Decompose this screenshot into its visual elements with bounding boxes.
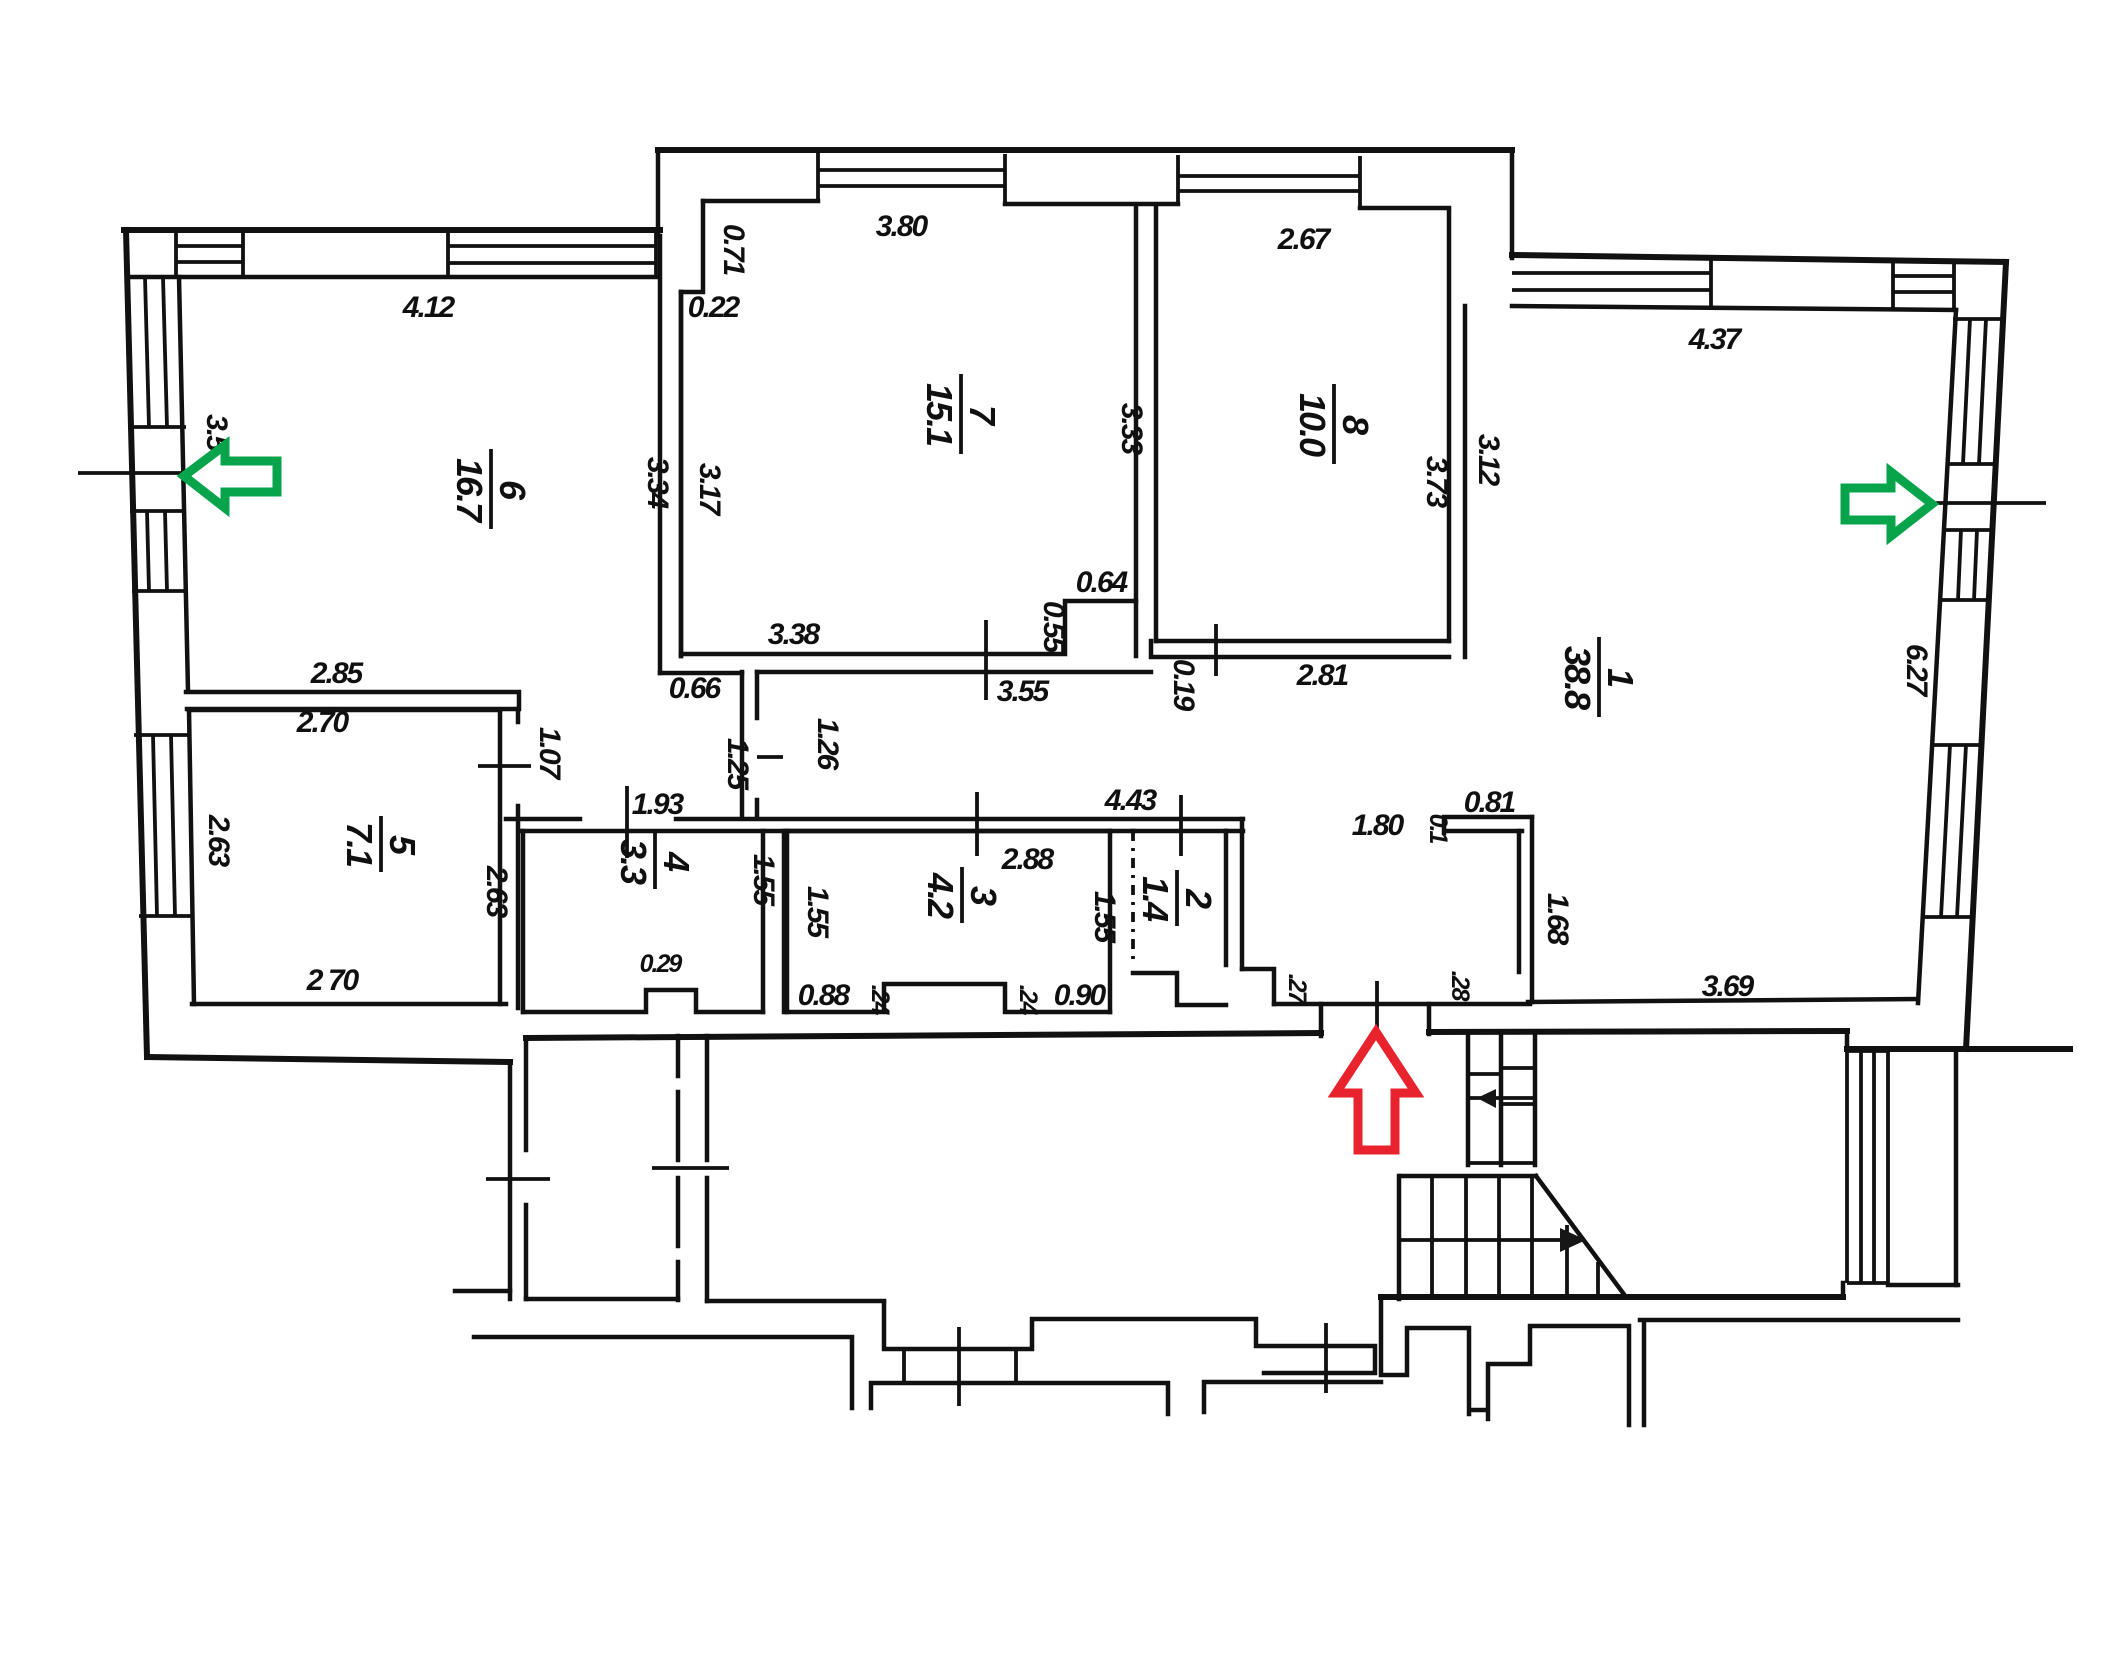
svg-text:0.29: 0.29 [640,950,683,978]
svg-text:0.71: 0.71 [717,224,750,276]
svg-text:4.43: 4.43 [1104,784,1158,817]
svg-text:1.68: 1.68 [1541,893,1574,946]
svg-text:1.80: 1.80 [1352,809,1405,842]
svg-text:3.3: 3.3 [613,839,654,885]
svg-text:4.37: 4.37 [1688,323,1743,356]
svg-text:0.81: 0.81 [1464,786,1516,819]
svg-text:0.19: 0.19 [1167,659,1200,712]
svg-text:2.81: 2.81 [1296,659,1349,692]
svg-text:4: 4 [656,851,697,872]
svg-text:2.70: 2.70 [296,706,350,739]
svg-text:0.64: 0.64 [1076,566,1129,599]
svg-text:16.7: 16.7 [449,458,490,524]
svg-text:1.55: 1.55 [747,854,780,908]
svg-text:3.69: 3.69 [1702,970,1755,1003]
svg-text:4.12: 4.12 [402,291,456,324]
svg-text:1.55: 1.55 [1088,891,1121,945]
svg-text:2 70: 2 70 [306,964,360,997]
svg-text:2.63: 2.63 [202,814,235,868]
svg-text:3.38: 3.38 [768,618,821,651]
svg-text:7.1: 7.1 [339,822,380,867]
svg-text:2: 2 [1178,888,1219,909]
svg-text:38.8: 38.8 [1557,646,1598,710]
svg-text:3.55: 3.55 [997,675,1051,708]
svg-text:1.26: 1.26 [811,718,844,771]
svg-text:.28: .28 [1446,971,1474,1002]
svg-text:10.0: 10.0 [1292,393,1333,457]
svg-text:0.22: 0.22 [688,291,741,324]
svg-text:1.55: 1.55 [801,886,834,940]
svg-text:3.33: 3.33 [1115,403,1148,456]
svg-text:0.55: 0.55 [1037,601,1070,655]
svg-text:0.88: 0.88 [798,979,851,1012]
svg-text:2.63: 2.63 [480,865,513,919]
svg-text:.24: .24 [1014,985,1042,1016]
svg-text:1.4: 1.4 [1135,876,1176,922]
svg-text:1.25: 1.25 [721,738,754,792]
svg-text:6: 6 [492,480,533,501]
svg-text:0.90: 0.90 [1054,979,1107,1012]
svg-text:.24: .24 [866,985,894,1016]
svg-text:0.66: 0.66 [669,672,722,705]
svg-text:15.1: 15.1 [919,383,960,446]
svg-text:3.34: 3.34 [641,457,674,510]
svg-text:1.93: 1.93 [632,788,685,821]
svg-text:3.12: 3.12 [1472,434,1505,487]
svg-text:3.17: 3.17 [693,463,726,517]
svg-text:8: 8 [1335,415,1376,435]
svg-text:6.27: 6.27 [1900,644,1933,698]
svg-text:3.80: 3.80 [876,210,929,243]
svg-text:4.2: 4.2 [920,872,961,919]
svg-text:3: 3 [963,886,1004,906]
svg-text:5: 5 [382,835,423,856]
svg-text:1: 1 [1600,668,1641,687]
svg-text:2.88: 2.88 [1001,843,1055,876]
svg-text:1.07: 1.07 [533,727,566,781]
svg-text:2.67: 2.67 [1277,223,1332,256]
svg-text:2.85: 2.85 [310,657,365,690]
svg-text:.27: .27 [1283,974,1311,1006]
